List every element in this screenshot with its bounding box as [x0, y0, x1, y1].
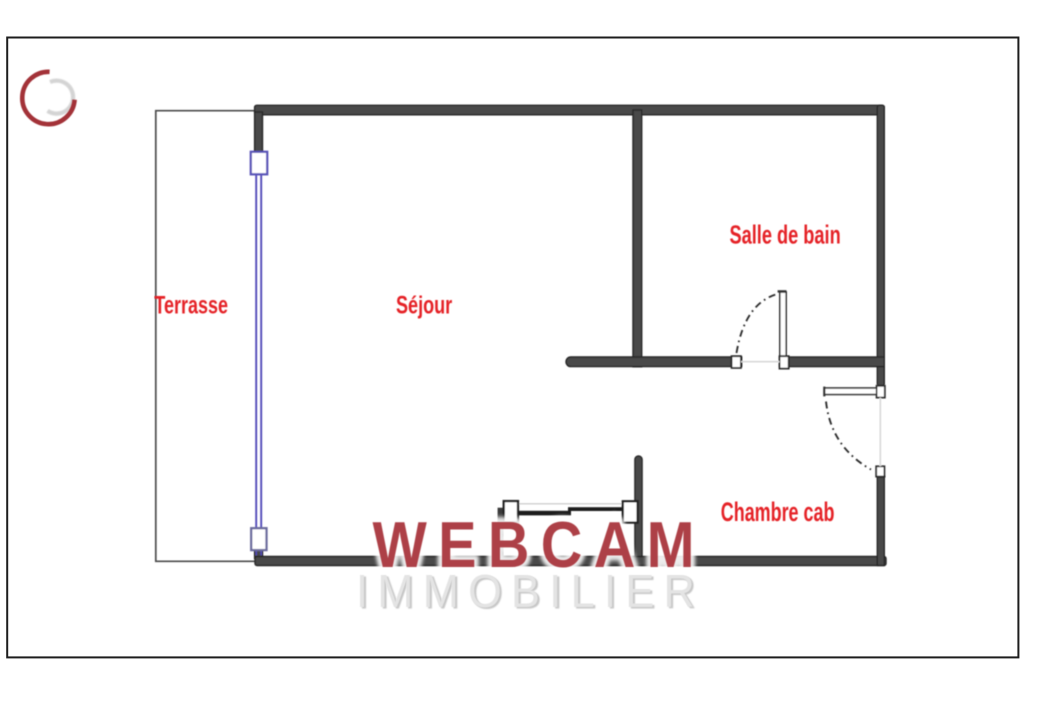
svg-text:Salle de bain: Salle de bain — [730, 220, 841, 250]
svg-text:Chambre cab: Chambre cab — [721, 497, 835, 527]
svg-text:IMMOBILIER: IMMOBILIER — [356, 564, 704, 617]
svg-text:Séjour: Séjour — [396, 292, 452, 320]
svg-text:Terrasse: Terrasse — [154, 292, 228, 320]
